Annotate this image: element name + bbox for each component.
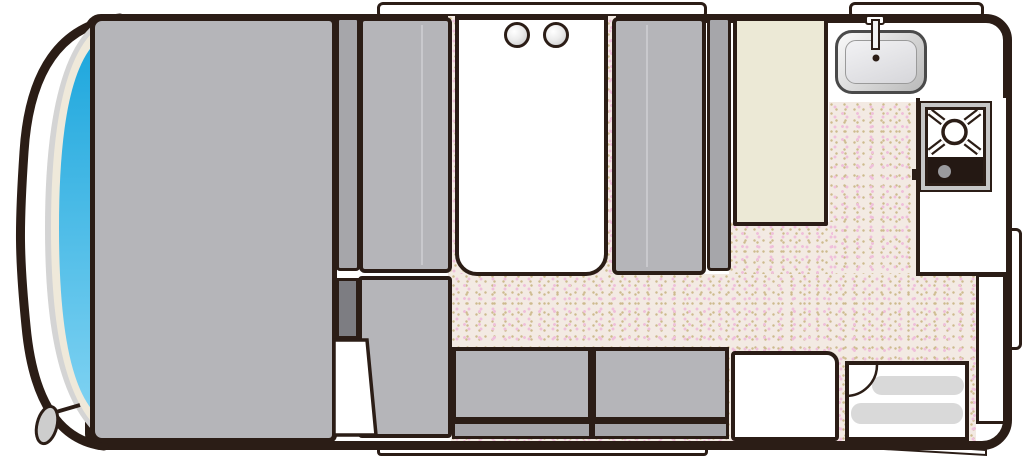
entry-door-swing-icon [0, 0, 1024, 458]
floorplan-stage [0, 0, 1024, 458]
